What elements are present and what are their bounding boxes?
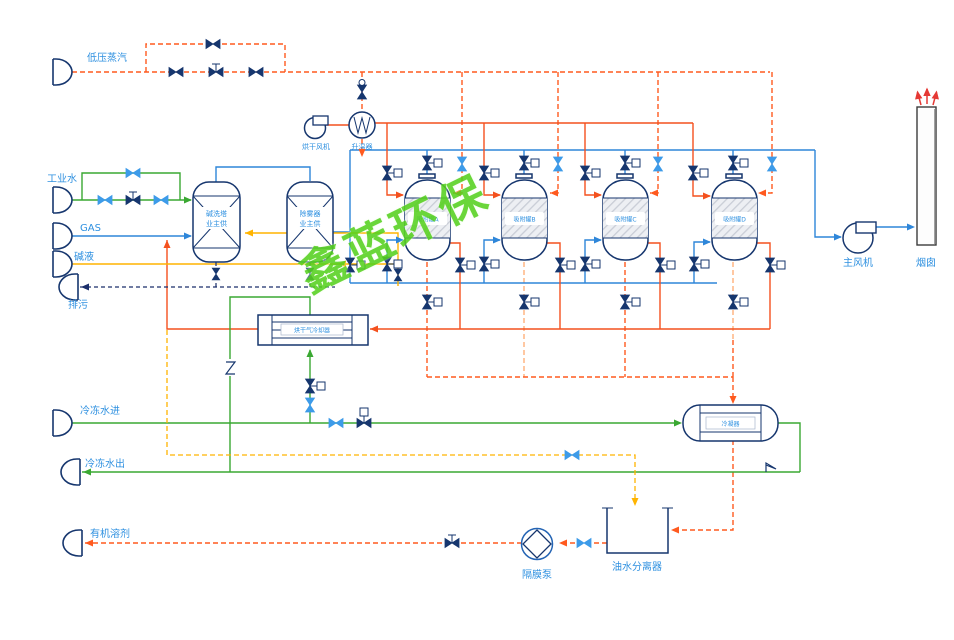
gas-label: GAS bbox=[80, 223, 101, 234]
valve-icon bbox=[126, 169, 140, 178]
chimney: 烟囱 bbox=[915, 89, 940, 269]
oil-water-separator: 油水分离器 bbox=[602, 508, 673, 573]
adsorber-d-label: 吸附罐D bbox=[723, 216, 746, 224]
valve-icon bbox=[577, 539, 591, 548]
drain-piping bbox=[80, 262, 335, 287]
hot-gas-piping bbox=[167, 123, 770, 329]
steam-label: 低压蒸汽 bbox=[87, 51, 127, 64]
main-fan-label: 主风机 bbox=[843, 256, 873, 269]
adsorber-a-label: 吸附罐A bbox=[416, 216, 439, 224]
chilled-water-in-connector bbox=[53, 410, 72, 436]
adsorber-b-label: 吸附罐B bbox=[513, 216, 535, 224]
chilled-water-in-label: 冷冻水进 bbox=[80, 404, 120, 417]
heater: 升温器 bbox=[349, 112, 375, 151]
steam-piping bbox=[72, 44, 772, 193]
chimney-label: 烟囱 bbox=[916, 256, 936, 269]
adsorber-b: 吸附罐B bbox=[502, 174, 547, 260]
diaphragm-pump: 隔膜泵 bbox=[522, 529, 553, 582]
valve-icon bbox=[154, 196, 168, 205]
line-break-icon bbox=[223, 359, 237, 376]
adsorber-a: 吸附罐A bbox=[405, 174, 450, 260]
valve-icon bbox=[554, 157, 563, 171]
instrument-flag-icon bbox=[766, 463, 776, 472]
demister-label-1: 除雾器 bbox=[300, 209, 321, 218]
condenser: 冷凝器 bbox=[683, 405, 778, 441]
scrubber-label-1: 碱洗塔 bbox=[206, 209, 227, 218]
alkali-source-connector bbox=[53, 251, 72, 277]
valve-icon bbox=[394, 269, 402, 281]
valve-icon bbox=[98, 196, 112, 205]
process-flow-diagram: 碱洗塔 业主供 除雾器 业主供 吸附罐A 吸附罐B 吸附罐C bbox=[0, 0, 954, 640]
drain-outlet-connector bbox=[59, 274, 78, 300]
adsorber-c-label: 吸附罐C bbox=[614, 216, 636, 224]
valve-icon bbox=[206, 40, 220, 49]
valve-icon bbox=[458, 157, 467, 171]
drying-gas-cooler-label: 烘干气冷却器 bbox=[294, 327, 330, 335]
organic-solvent-label: 有机溶剂 bbox=[90, 527, 130, 540]
valve-icon bbox=[212, 268, 220, 280]
chilled-water-out-label: 冷冻水出 bbox=[85, 457, 125, 470]
diaphragm-pump-label: 隔膜泵 bbox=[522, 569, 552, 581]
main-fan: 主风机 bbox=[843, 222, 876, 269]
alkali-piping bbox=[72, 233, 635, 504]
alkali-label: 碱液 bbox=[74, 250, 94, 263]
adsorber-d: 吸附罐D bbox=[712, 174, 757, 260]
valve-icon bbox=[329, 419, 343, 428]
valve-icon bbox=[654, 157, 663, 171]
solvent-outlet-connector bbox=[63, 530, 82, 556]
scrubber-label-2: 业主供 bbox=[206, 219, 227, 228]
drain-label: 排污 bbox=[68, 298, 88, 311]
valve-icon bbox=[768, 157, 777, 171]
valve-icon bbox=[169, 68, 183, 77]
demister-label-2: 业主供 bbox=[300, 219, 321, 228]
valve-icon bbox=[249, 68, 263, 77]
drying-fan: 烘干风机 bbox=[302, 116, 330, 151]
drying-fan-label: 烘干风机 bbox=[302, 142, 330, 151]
alkali-scrubber: 碱洗塔 业主供 bbox=[193, 182, 240, 262]
stack-emission-arrows-icon bbox=[915, 89, 940, 105]
adsorber-c: 吸附罐C bbox=[603, 174, 648, 260]
valve-icon bbox=[565, 451, 579, 460]
industrial-water-label: 工业水 bbox=[47, 173, 77, 185]
valve-icon bbox=[306, 398, 315, 412]
stream-labels: 低压蒸汽 工业水 GAS 碱液 排污 冷冻水进 冷冻水出 有机溶剂 bbox=[47, 51, 130, 540]
chilled-water-out-connector bbox=[61, 459, 80, 485]
demister: 除雾器 业主供 bbox=[287, 182, 333, 262]
industrial-water-connector bbox=[53, 187, 72, 213]
steam-source-connector bbox=[53, 59, 72, 85]
drying-gas-cooler: 烘干气冷却器 bbox=[258, 315, 368, 345]
valve-icon bbox=[306, 268, 314, 280]
condenser-label: 冷凝器 bbox=[721, 420, 739, 428]
gas-source-connector bbox=[53, 223, 72, 249]
oil-water-separator-label: 油水分离器 bbox=[612, 560, 662, 573]
